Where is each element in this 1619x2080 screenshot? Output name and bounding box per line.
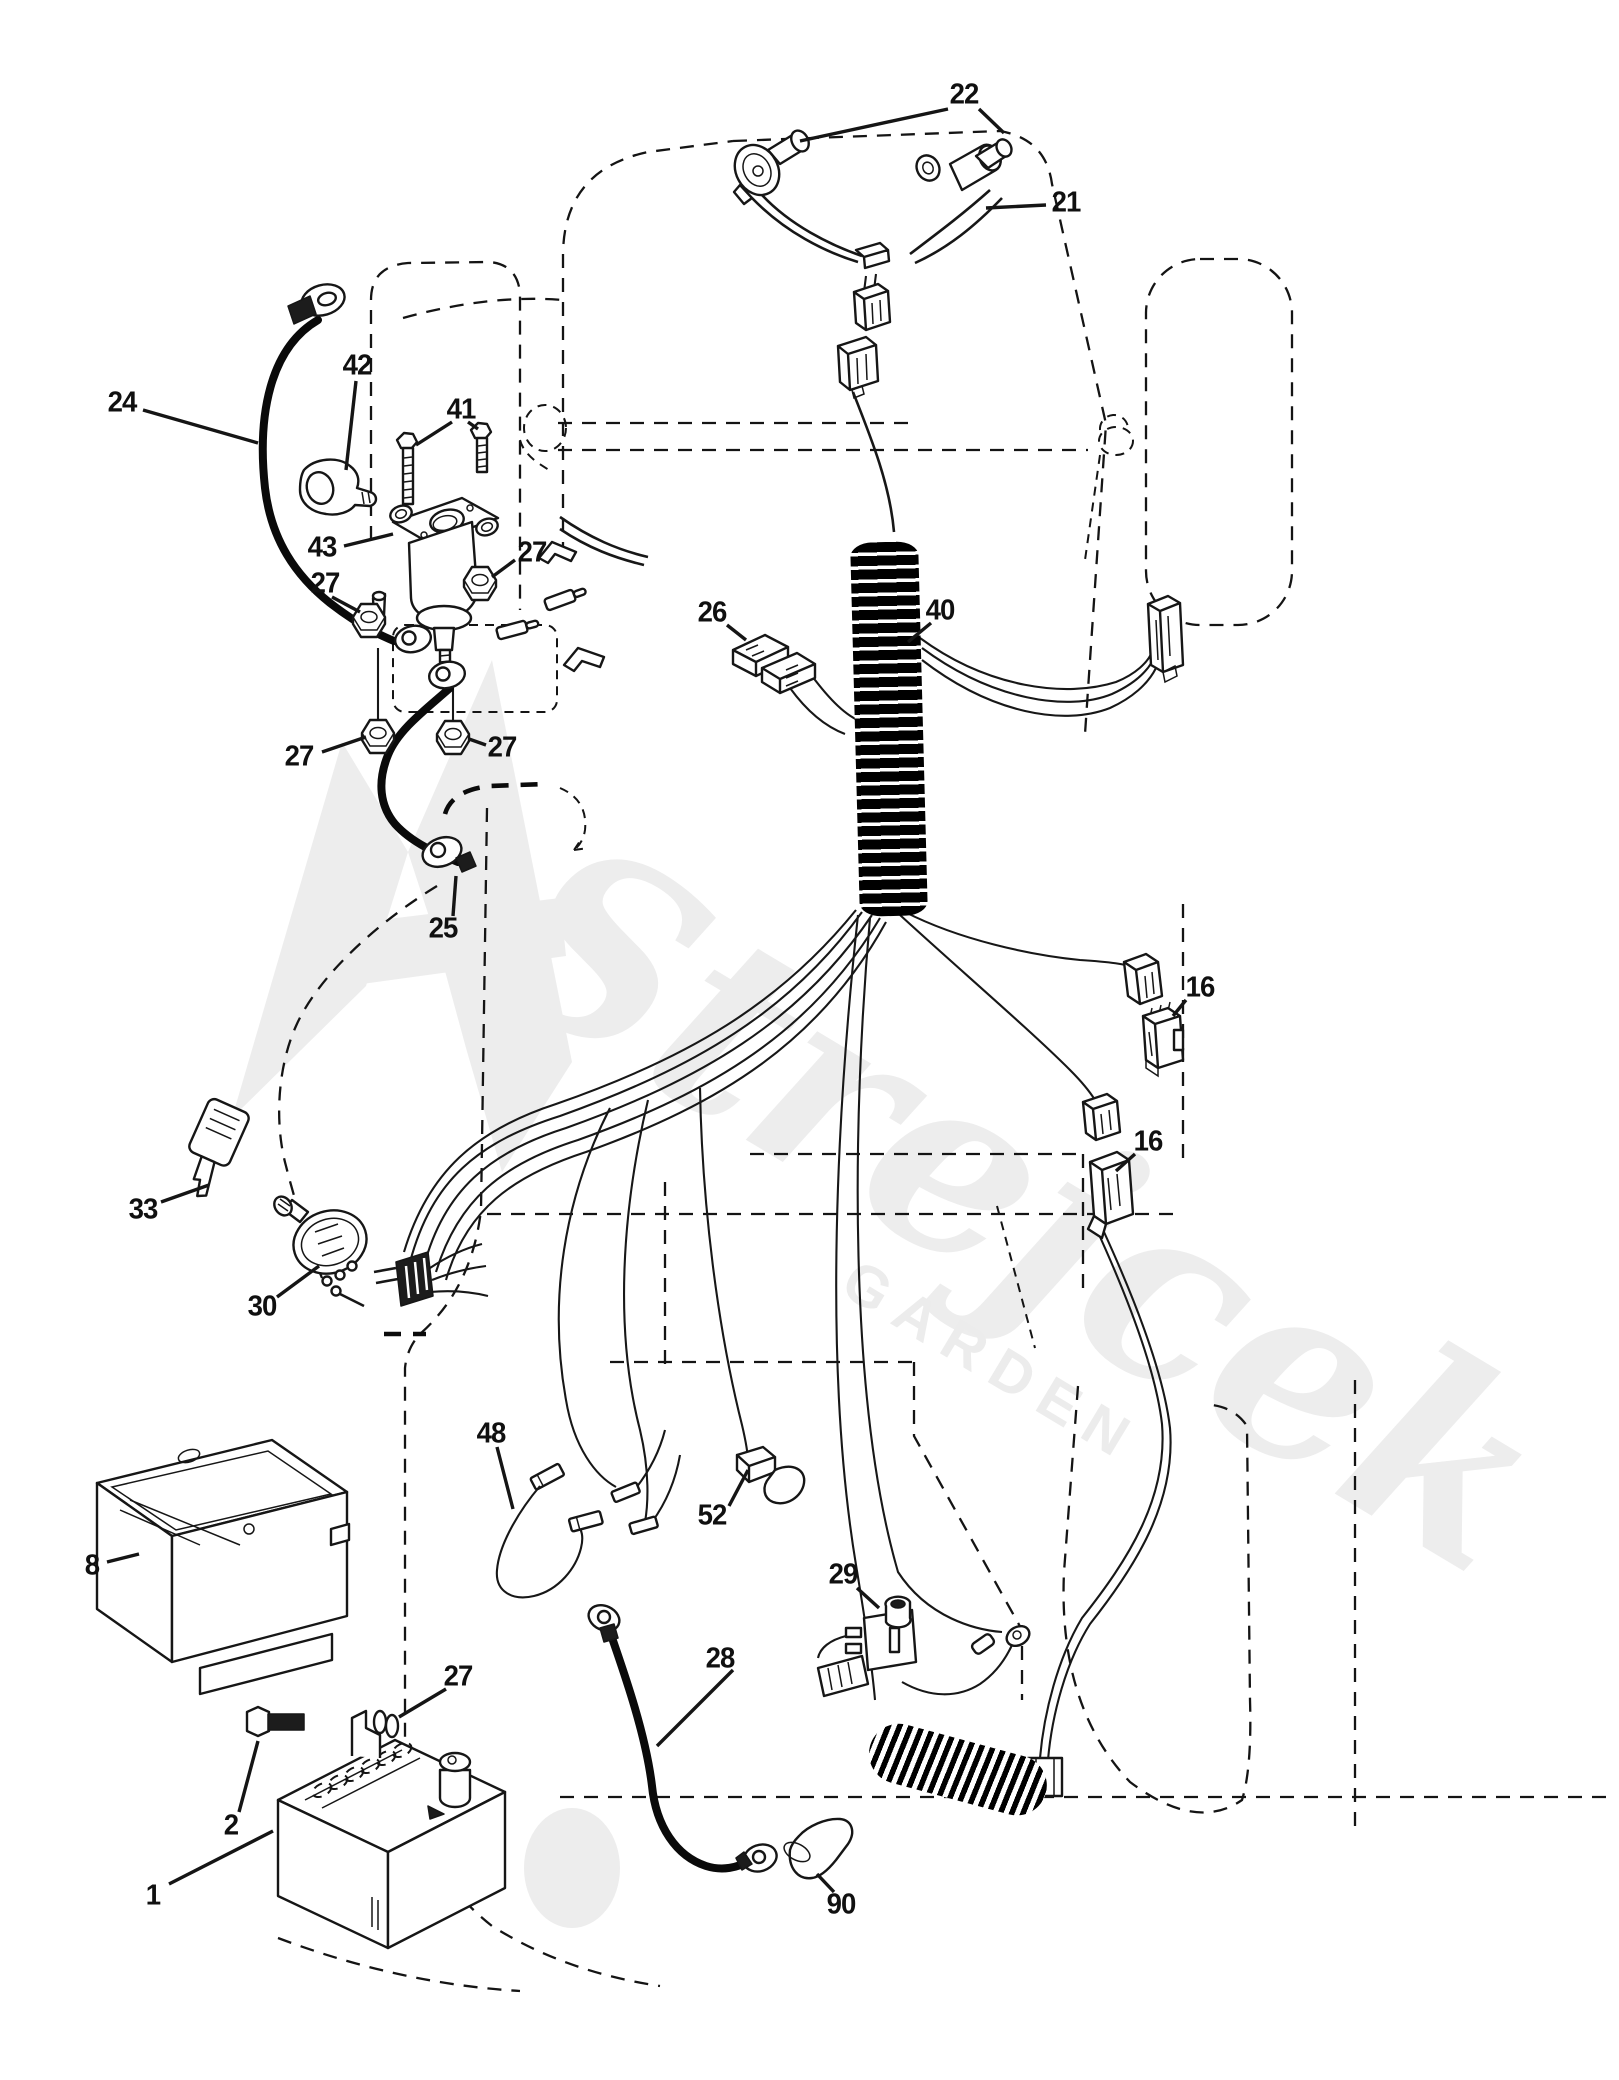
leader-lines xyxy=(107,109,1186,1892)
parts-diagram-page: Strejcek GARDEN xyxy=(0,0,1619,2080)
leader-overlay xyxy=(0,0,1619,2080)
